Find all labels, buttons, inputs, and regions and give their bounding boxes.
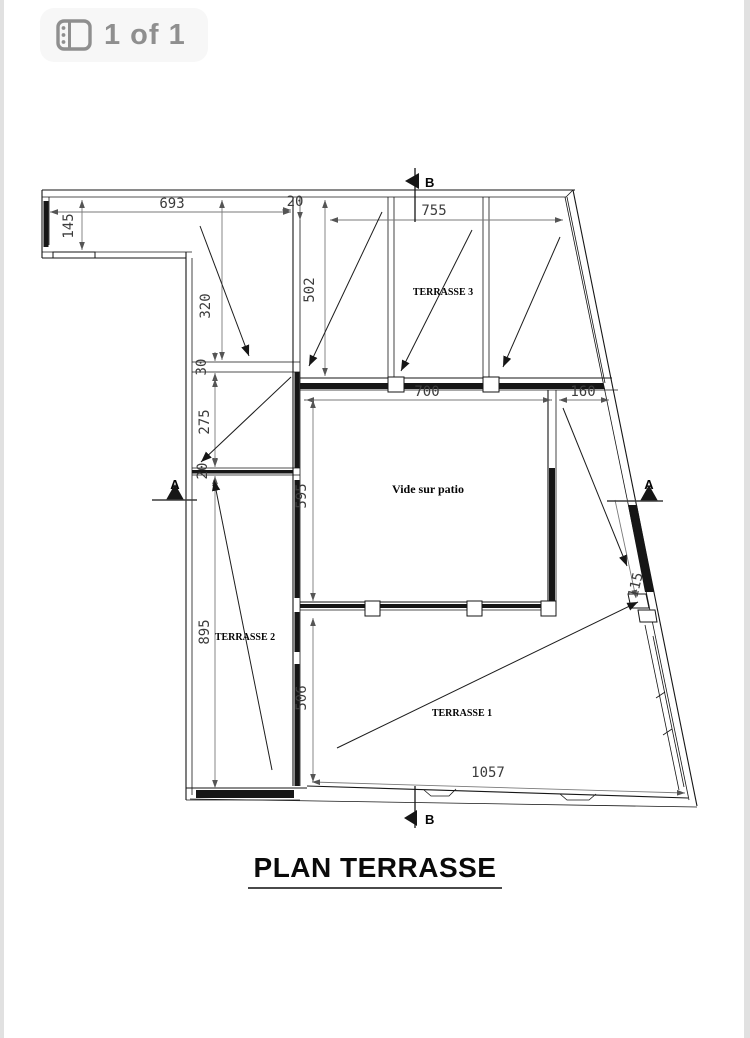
section-b-bottom-arrow-icon bbox=[404, 810, 417, 826]
section-b-top-arrow-icon bbox=[405, 173, 419, 189]
section-a-right-arrow-icon bbox=[640, 485, 658, 501]
dim-320: 320 bbox=[198, 293, 214, 318]
dim-595: 595 bbox=[294, 483, 310, 508]
drawing-title: PLAN TERRASSE bbox=[248, 852, 503, 889]
dim-145: 145 bbox=[61, 213, 77, 238]
section-a-left-arrow-icon bbox=[166, 484, 184, 500]
dim-693: 693 bbox=[159, 196, 184, 212]
drawing-title-row: PLAN TERRASSE bbox=[0, 852, 750, 889]
room-label-terrasse2: TERRASSE 2 bbox=[215, 632, 275, 643]
dimension-lines bbox=[50, 200, 685, 793]
outer-walls bbox=[42, 190, 697, 807]
dim-20-left: 20 bbox=[195, 463, 211, 480]
room-label-terrasse3: TERRASSE 3 bbox=[413, 287, 473, 298]
dim-506: 506 bbox=[294, 685, 310, 710]
room-label-terrasse1: TERRASSE 1 bbox=[432, 708, 492, 719]
section-b-top-label: B bbox=[425, 175, 434, 190]
dim-275: 275 bbox=[197, 409, 213, 434]
dim-20-top: 20 bbox=[287, 194, 304, 210]
dim-700: 700 bbox=[414, 384, 439, 400]
dim-1057: 1057 bbox=[471, 765, 505, 781]
dim-895: 895 bbox=[197, 619, 213, 644]
section-marker-b-bottom: B bbox=[404, 786, 434, 828]
dim-30: 30 bbox=[194, 359, 210, 376]
section-b-bottom-label: B bbox=[425, 812, 434, 827]
dim-160: 160 bbox=[570, 384, 595, 400]
dimension-labels: 693 145 20 320 30 275 20 895 502 755 700… bbox=[61, 194, 647, 781]
dim-755: 755 bbox=[421, 203, 446, 219]
room-label-patio: Vide sur patio bbox=[392, 482, 464, 496]
dim-502: 502 bbox=[302, 277, 318, 302]
section-marker-a-left: A bbox=[152, 477, 197, 500]
